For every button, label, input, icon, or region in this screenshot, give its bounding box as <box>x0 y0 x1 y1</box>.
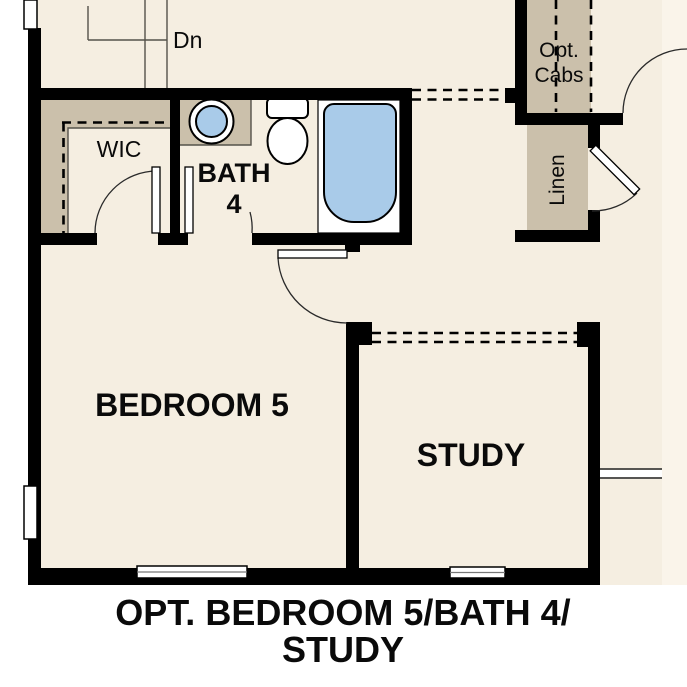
study-label: STUDY <box>417 437 525 473</box>
window-left <box>24 486 37 539</box>
wall-bedroom-top-left <box>28 233 97 245</box>
caption-line2: STUDY <box>282 629 404 670</box>
floor-right-margin <box>662 0 687 585</box>
wall-top <box>28 88 412 100</box>
bath-label-line2: 4 <box>226 189 241 219</box>
wall-under-cabs <box>515 113 623 125</box>
wall-bath-right <box>400 88 412 238</box>
stairs-down-label: Dn <box>173 27 202 53</box>
window-top-left <box>24 0 37 29</box>
wic-door-leaf <box>152 167 160 233</box>
sink-bowl <box>196 106 227 137</box>
opt-cabs-label-line1: Opt. <box>539 39 579 62</box>
linen-label: Linen <box>546 154 569 205</box>
bedroom-door-leaf <box>278 250 347 258</box>
wall-study-left <box>346 322 359 585</box>
caption-line1: OPT. BEDROOM 5/BATH 4/ <box>115 592 570 633</box>
wall-linen-bottom <box>515 230 600 242</box>
wall-bottom-exterior <box>28 568 600 585</box>
wall-study-right <box>588 322 600 585</box>
bath-label-line1: BATH <box>198 158 271 188</box>
wall-hall-right <box>515 0 527 125</box>
opt-cabs-label-line2: Cabs <box>534 64 583 87</box>
window-bottom-study <box>450 567 505 578</box>
window-bottom-bedroom <box>137 566 247 578</box>
wall-linen-right-upper <box>588 113 600 148</box>
wall-bath-bottom <box>252 233 412 245</box>
wall-bedroom-door-jamb <box>345 233 360 252</box>
bedroom5-label: BEDROOM 5 <box>95 387 289 423</box>
floorplan-drawing: Dn WIC BATH 4 Opt. Cabs Linen BEDROOM 5 … <box>0 0 687 687</box>
wall-door-jamb-center <box>158 233 188 245</box>
wic-label: WIC <box>97 136 142 162</box>
bathtub <box>324 104 396 222</box>
bath-door-leaf <box>185 167 193 233</box>
wall-wic-bath-divider <box>170 88 180 233</box>
pass-through-right <box>600 469 662 478</box>
floorplan-page: Dn WIC BATH 4 Opt. Cabs Linen BEDROOM 5 … <box>0 0 687 687</box>
toilet-bowl <box>268 118 308 164</box>
toilet-tank <box>267 98 308 118</box>
